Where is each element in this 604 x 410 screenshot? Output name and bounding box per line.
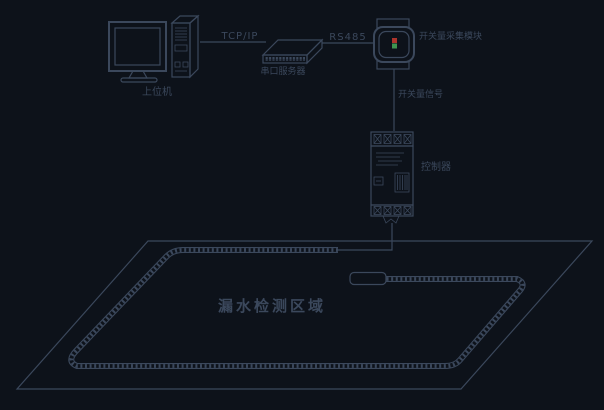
tower-button-right (183, 62, 188, 67)
server-ports (265, 57, 305, 61)
serial-server-icon (263, 40, 322, 63)
tower-drive-bay (175, 45, 187, 51)
server-side (307, 40, 322, 63)
host-computer-label: 上位机 (142, 85, 172, 98)
tower-vents (175, 28, 187, 40)
serial-server-label: 串口服务器 (260, 65, 305, 77)
detection-area-label: 漏水检测区域 (218, 297, 326, 315)
tower-side (190, 16, 198, 77)
cable-end-terminator (350, 273, 386, 285)
server-top (263, 40, 322, 55)
controller-to-cable-wire (338, 223, 392, 250)
diagram-canvas: 上位机 TCP/IP 串口服务器 RS485 开关量采集模块 开关量信号 (0, 0, 604, 410)
tower-button-left (175, 62, 180, 67)
controller-din-clip (383, 216, 399, 223)
rs485-label: RS485 (329, 32, 366, 43)
module-led-green (392, 44, 397, 49)
controller-top-screws (374, 135, 411, 144)
controller-icon (371, 132, 413, 223)
host-computer-icon (109, 16, 198, 82)
monitor-stand (129, 71, 147, 78)
monitor-base (121, 78, 157, 82)
controller-barcode (395, 173, 409, 192)
controller-nameplate-lines (376, 153, 404, 165)
tcpip-label: TCP/IP (221, 31, 259, 42)
switch-signal-label: 开关量信号 (398, 88, 443, 100)
io-module-label: 开关量采集模块 (419, 30, 482, 42)
controller-bottom-screws (374, 207, 411, 215)
controller-label: 控制器 (421, 160, 451, 173)
monitor-icon (109, 22, 166, 71)
io-module-icon (374, 19, 414, 69)
monitor-screen (115, 28, 160, 65)
module-led-red (392, 38, 397, 43)
